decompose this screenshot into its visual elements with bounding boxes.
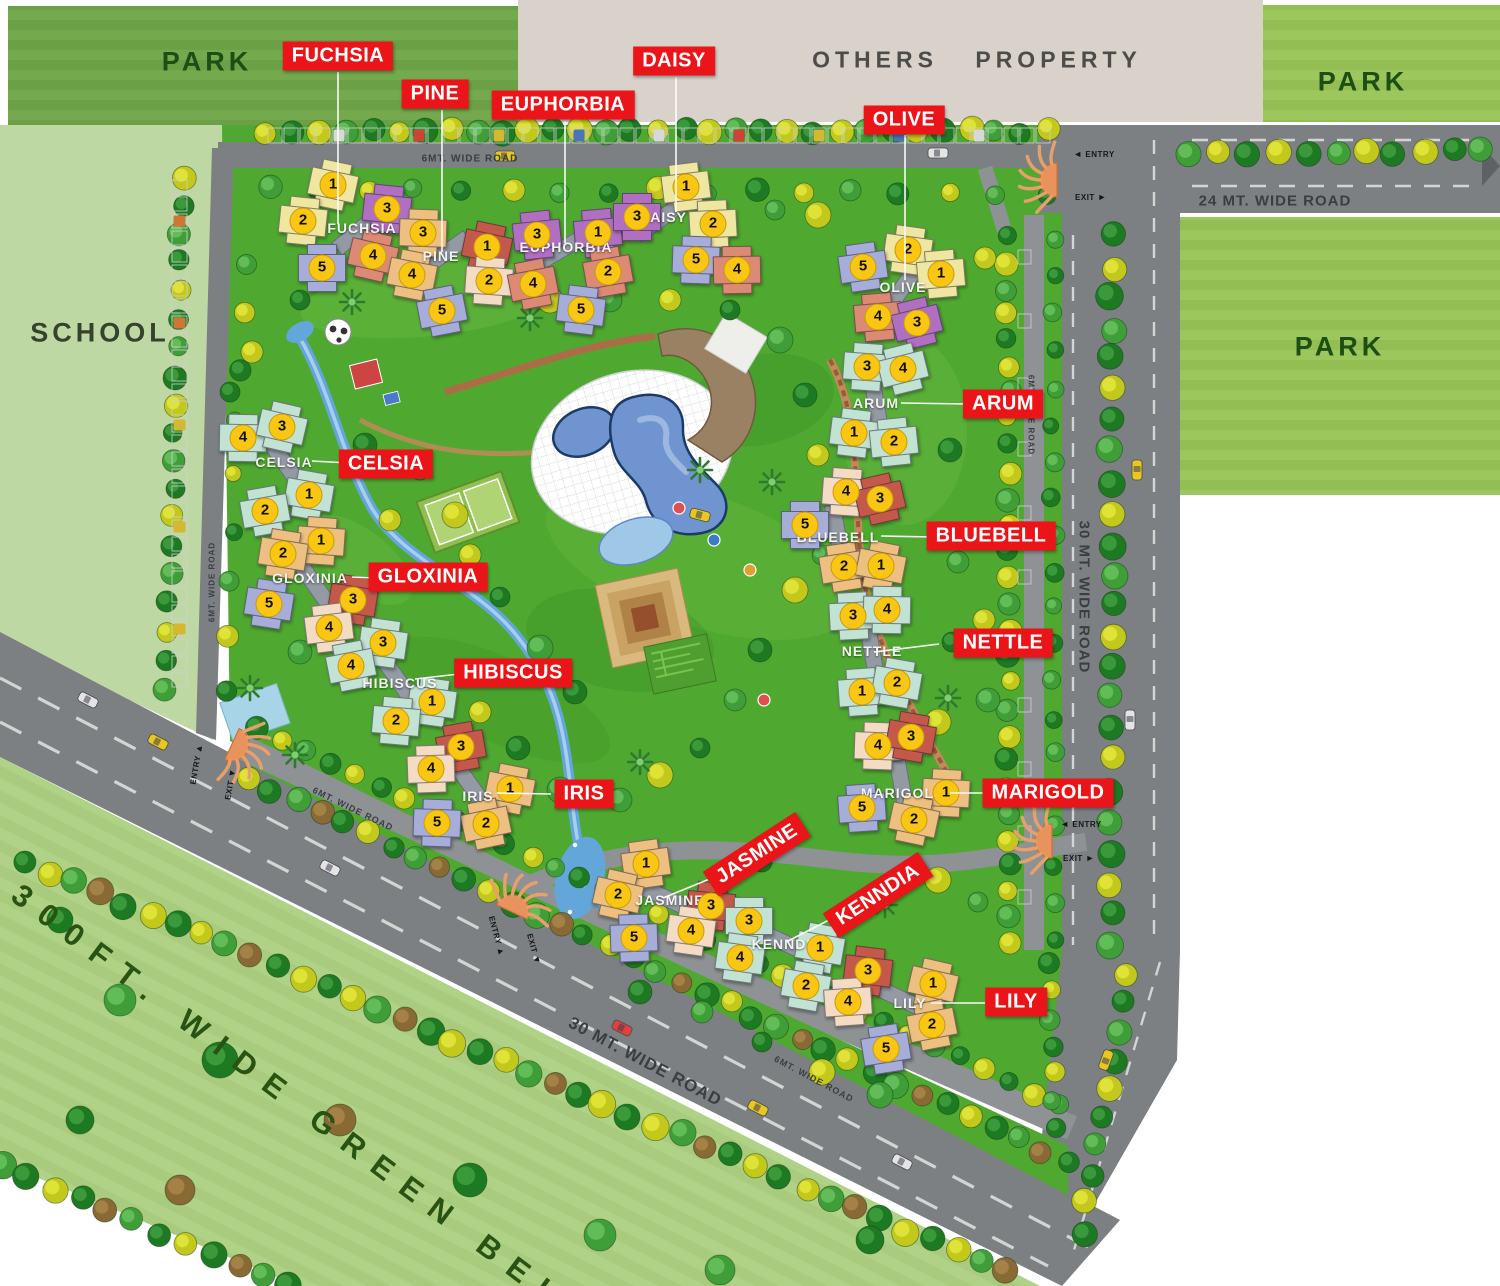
base-map <box>0 0 1500 1286</box>
park-top-right-area <box>1263 5 1500 122</box>
park-top-left-area <box>8 6 518 125</box>
car-icon <box>1125 710 1135 730</box>
school-area <box>0 125 232 740</box>
park-right-area <box>1180 217 1500 495</box>
car-icon <box>1132 460 1142 480</box>
car-icon <box>495 151 515 161</box>
others-property-area <box>518 0 1263 122</box>
site-master-plan: PARK PARK PARK SCHOOL OTHERS PROPERTY 30… <box>0 0 1500 1286</box>
car-icon <box>928 148 948 158</box>
